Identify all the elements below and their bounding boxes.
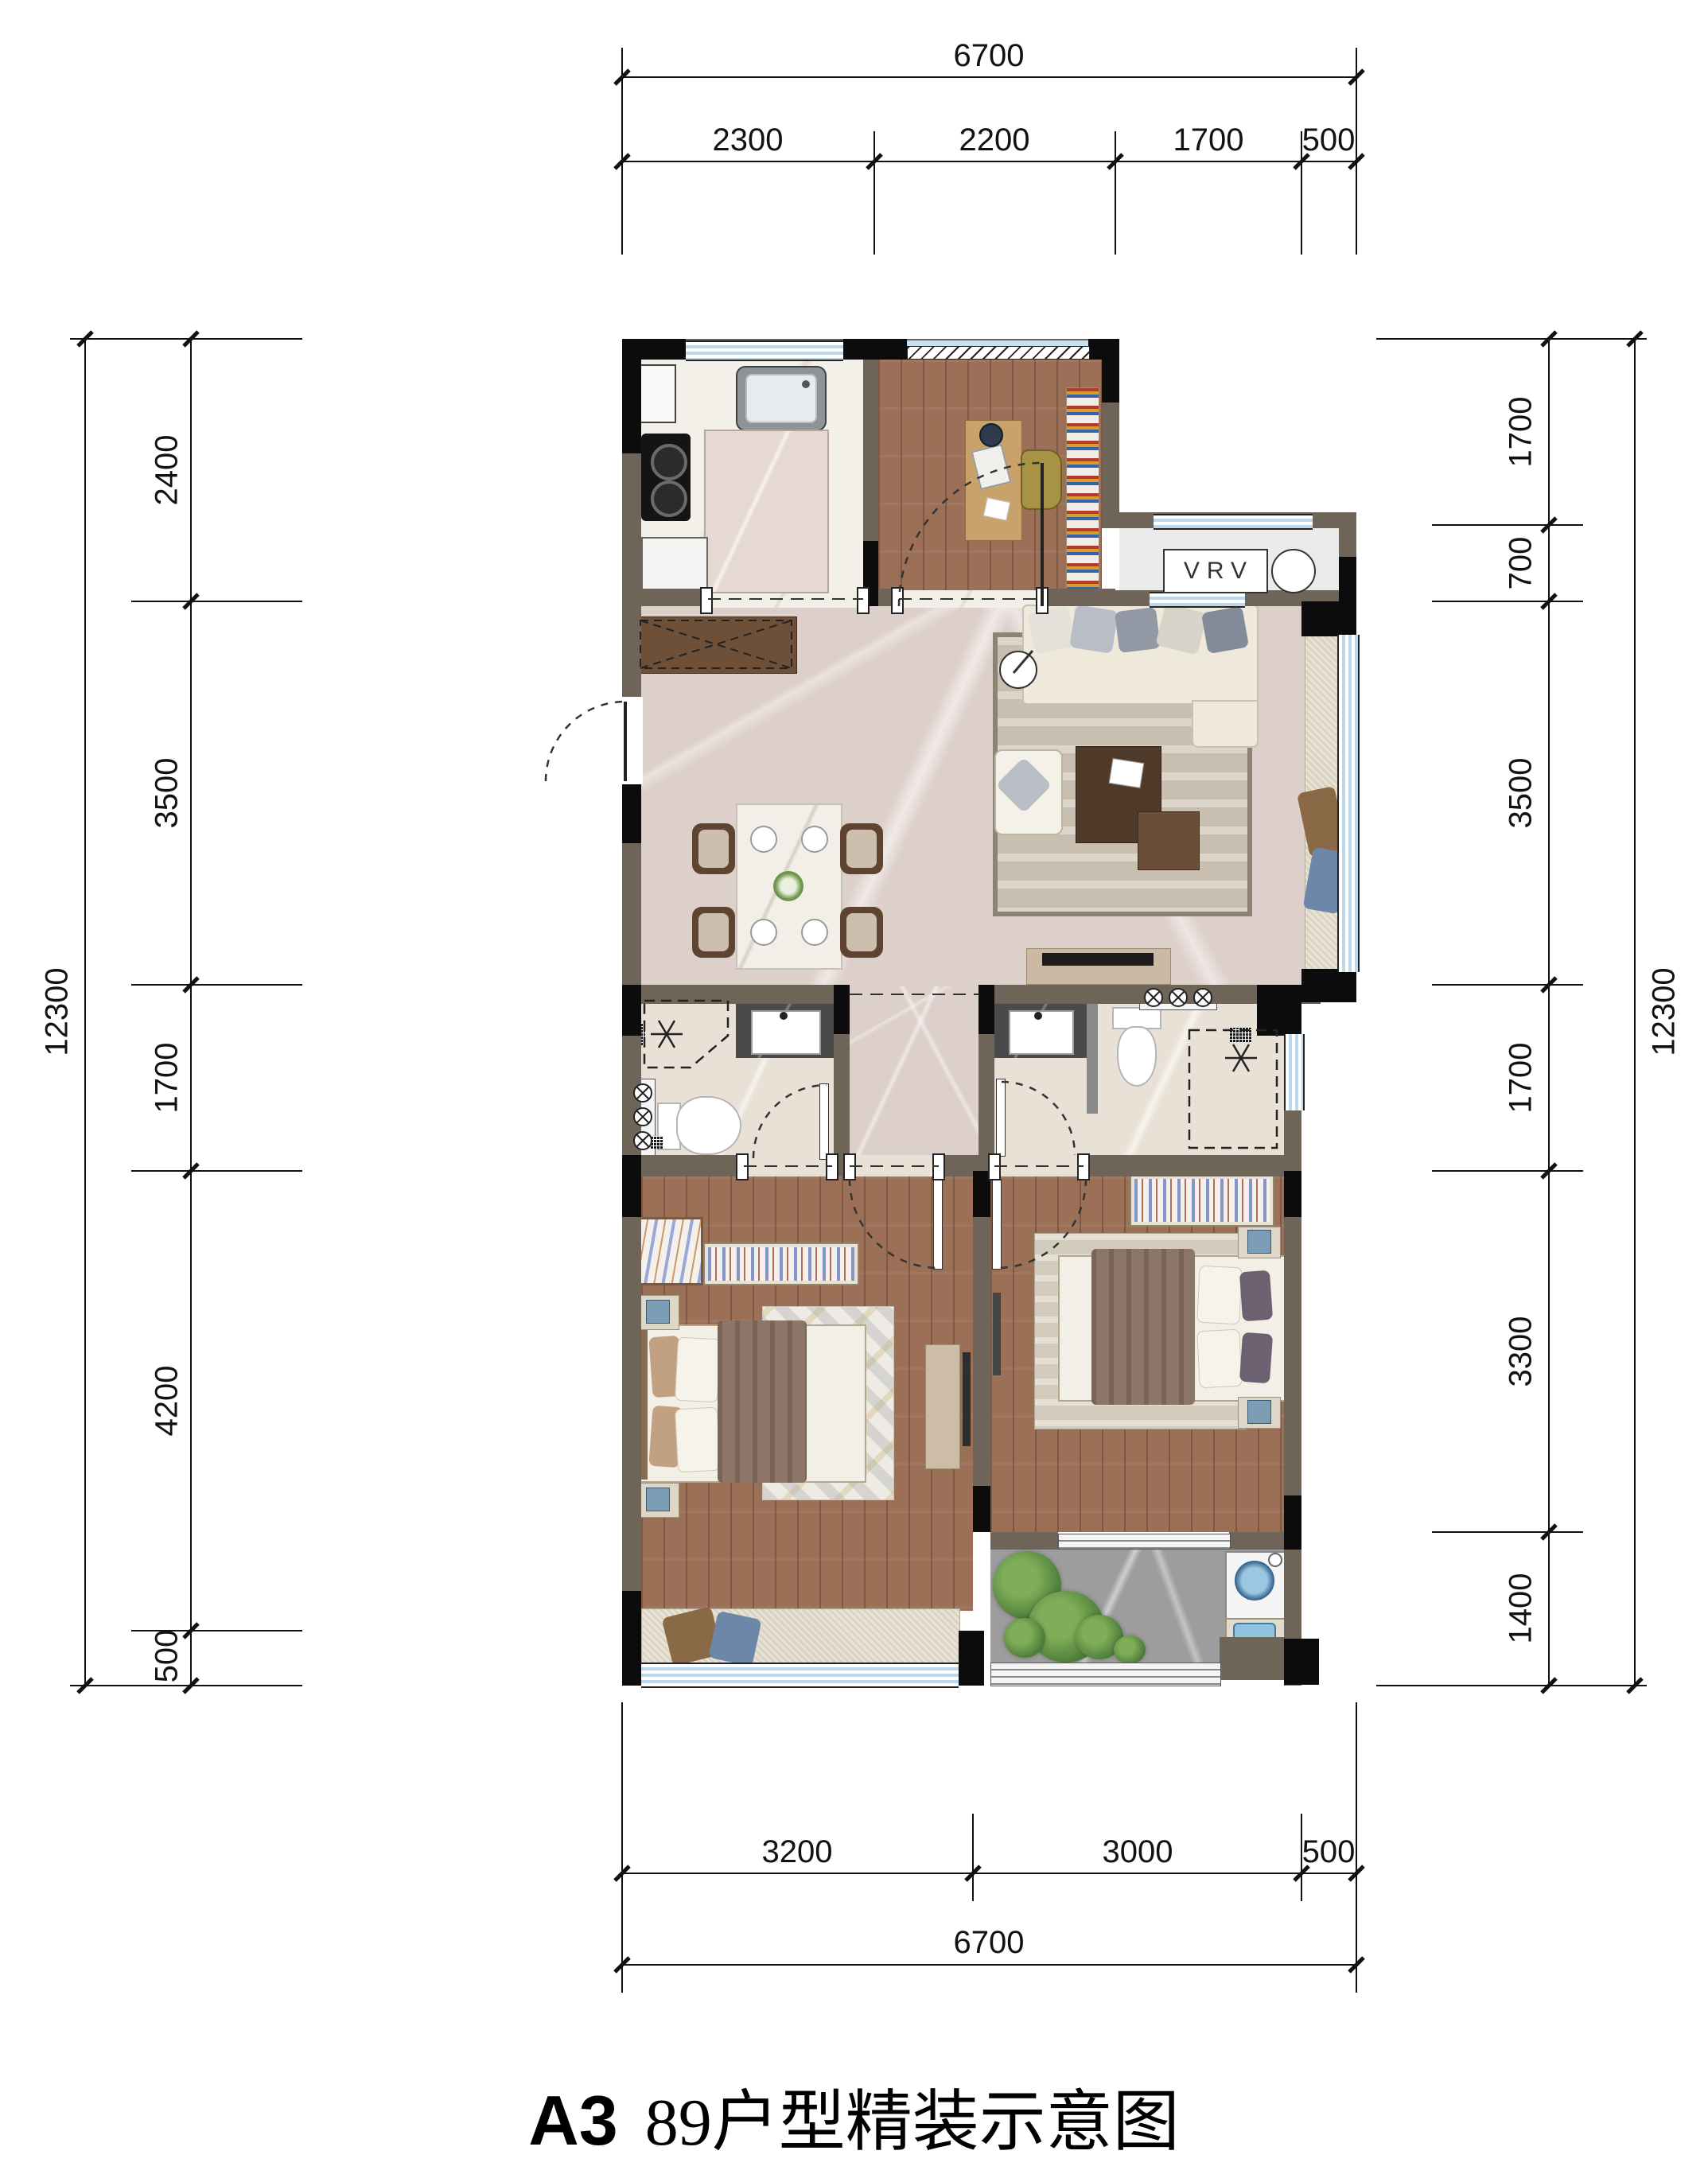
- living-bay-window: [1337, 635, 1360, 972]
- dim-label: 2400: [150, 435, 185, 506]
- bedroom1-wardrobe: [703, 1243, 859, 1285]
- door-jamb: [1077, 1153, 1090, 1180]
- door-jamb: [843, 1153, 856, 1180]
- sofa-pillow: [1027, 605, 1076, 655]
- dim-label: 2200: [959, 123, 1030, 158]
- bath2-toilet-bowl: [1117, 1026, 1157, 1087]
- dim-label: 2300: [713, 123, 784, 158]
- cooktop-burner-icon: [651, 480, 687, 517]
- bedroom2-wardrobe: [1130, 1174, 1274, 1227]
- dim-label: 1400: [1504, 1573, 1539, 1644]
- balcony-railing-window: [990, 1663, 1221, 1686]
- dim-label: 3500: [150, 758, 185, 829]
- sofa-chaise: [1192, 700, 1259, 748]
- vrv-text: VRV: [1184, 558, 1254, 585]
- dining-chair-cushion: [846, 913, 877, 951]
- desk-chair: [1021, 449, 1062, 510]
- dim-label: 6700: [954, 1925, 1025, 1961]
- table-flowers-icon: [773, 871, 803, 901]
- floor-lamp-icon: [999, 651, 1037, 689]
- door-jamb: [736, 1153, 749, 1180]
- nightstand-accessory-icon: [646, 1300, 670, 1324]
- bed2-pillow-purple: [1239, 1270, 1273, 1321]
- wall-column: [1301, 969, 1356, 1002]
- wall: [1284, 1171, 1301, 1550]
- bedroom2-tv-screen: [993, 1293, 1001, 1375]
- bath2-window: [1284, 1034, 1305, 1110]
- study-door-threshold: [899, 590, 1042, 608]
- master-bath-door-leaf: [819, 1083, 829, 1160]
- door-jamb: [826, 1153, 838, 1180]
- wall: [1220, 1637, 1284, 1680]
- study-window-glass: [907, 340, 1088, 346]
- bedroom1-dresser: [925, 1344, 960, 1469]
- sofa-pillow: [1115, 607, 1161, 653]
- sofa-pillow: [1069, 605, 1119, 654]
- dim-label: 3200: [762, 1834, 833, 1870]
- bedroom2-balcony-window: [1058, 1534, 1231, 1550]
- vrv-fan-icon: [1271, 549, 1316, 593]
- wall: [641, 1155, 744, 1176]
- dim-label: 1700: [150, 1043, 185, 1114]
- dim-label: 12300: [40, 967, 76, 1056]
- bedroom-door-thresholds: [744, 1155, 1084, 1176]
- kitchen-counter-cabinet: [641, 537, 708, 593]
- vrv-unit-label: VRV: [1163, 549, 1268, 593]
- dim-label: 700: [1504, 537, 1539, 590]
- dim-label: 3000: [1103, 1834, 1173, 1870]
- entry-door-arc: [546, 702, 625, 781]
- wall-column: [1301, 601, 1356, 636]
- door-jamb: [988, 1153, 1001, 1180]
- dim-label: 1700: [1173, 123, 1244, 158]
- door-jamb: [1036, 587, 1049, 614]
- bedroom1-bay-window: [641, 1663, 959, 1688]
- nightstand-accessory-icon: [1247, 1230, 1271, 1254]
- dining-chair-cushion: [846, 830, 877, 868]
- dim-label: 12300: [1647, 967, 1683, 1056]
- place-setting-icon: [750, 826, 777, 853]
- master-floor-drain-icon: [651, 1136, 663, 1149]
- master-toilet-bowl: [676, 1096, 741, 1155]
- bedroom2-door-leaf: [992, 1179, 1002, 1270]
- wall-column: [959, 1631, 984, 1686]
- bedroom1-art-frame: [635, 1217, 703, 1285]
- wall: [973, 1171, 990, 1532]
- bath2-sink-faucet-icon: [1034, 1012, 1042, 1020]
- dim-label: 500: [150, 1630, 185, 1683]
- bedroom1-tv-screen: [963, 1352, 971, 1446]
- wall-column: [1284, 1495, 1301, 1550]
- kitchen-window: [686, 340, 843, 361]
- wall-column: [622, 985, 641, 1036]
- wall-column: [622, 780, 641, 843]
- nightstand-accessory-icon: [646, 1488, 670, 1511]
- cooktop-burner-icon: [651, 444, 687, 480]
- dim-label: 1700: [1504, 397, 1539, 468]
- dim-label: 500: [1302, 1834, 1356, 1870]
- wall-column: [622, 1155, 641, 1217]
- hallway-floor: [850, 986, 979, 1155]
- wall-column: [622, 339, 641, 453]
- place-setting-icon: [750, 919, 777, 946]
- wall-column: [1339, 557, 1356, 606]
- wall-column: [622, 1591, 641, 1686]
- wall-column: [1102, 339, 1119, 403]
- bed2-pillow-white: [1196, 1329, 1243, 1389]
- kitchen-faucet-icon: [802, 380, 810, 388]
- wall: [1084, 1155, 1301, 1176]
- bedroom1-door-leaf: [933, 1179, 943, 1270]
- bed1-blanket: [718, 1320, 807, 1483]
- place-setting-icon: [801, 826, 828, 853]
- wardrobe-clothes-icon: [1134, 1179, 1270, 1222]
- wall: [1042, 589, 1115, 606]
- vrv-window: [1154, 514, 1313, 530]
- wardrobe-clothes-icon: [708, 1247, 854, 1281]
- door-jamb: [932, 1153, 945, 1180]
- bookshelf: [1066, 387, 1099, 590]
- coffee-table-lower: [1138, 811, 1200, 870]
- door-jamb: [700, 587, 713, 614]
- tv-screen: [1042, 953, 1154, 966]
- sofa-pillow: [1201, 606, 1249, 654]
- wall: [1229, 1532, 1284, 1550]
- dim-label: 6700: [954, 38, 1025, 74]
- wall-column: [834, 985, 850, 1034]
- bed2-pillow-white: [1196, 1266, 1243, 1325]
- wall-column: [1284, 1639, 1319, 1685]
- nightstand-accessory-icon: [1247, 1400, 1271, 1424]
- plan-title: A389户型精装示意图: [528, 2068, 1180, 2164]
- door-jamb: [857, 587, 870, 614]
- washer-dial-icon: [1268, 1553, 1282, 1567]
- unit-code: A3: [528, 2081, 618, 2160]
- kitchen-island: [704, 430, 829, 593]
- bed1-pillow-white: [675, 1407, 721, 1473]
- wall: [990, 1532, 1058, 1550]
- dim-label: 1700: [1504, 1043, 1539, 1114]
- master-sink-faucet-icon: [780, 1012, 788, 1020]
- bed1-pillow-white: [675, 1337, 721, 1403]
- dining-chair-cushion: [698, 830, 729, 868]
- entry-door-opening: [619, 697, 643, 784]
- wall: [641, 985, 850, 1004]
- unit-name: 89户型精装示意图: [645, 2086, 1180, 2160]
- dim-label: 4200: [150, 1366, 185, 1437]
- dim-label: 3500: [1504, 758, 1539, 829]
- wall-column: [1257, 985, 1301, 1036]
- plant-icon: [1114, 1635, 1146, 1664]
- wall-column: [979, 985, 994, 1034]
- living-high-window: [1150, 592, 1245, 608]
- place-setting-icon: [801, 919, 828, 946]
- study-window-screen: [907, 346, 1090, 360]
- bed2-pillow-purple: [1239, 1332, 1273, 1383]
- dim-label: 3300: [1504, 1316, 1539, 1387]
- wall-column: [973, 1486, 990, 1532]
- washer-drum-icon: [1235, 1561, 1274, 1600]
- dim-label: 500: [1302, 123, 1356, 158]
- floor-plan-page: VRV 6700 2300 2200 1700 500 3200 3000 50…: [0, 0, 1708, 2174]
- wall-column: [1284, 1171, 1301, 1217]
- dining-chair-cushion: [698, 913, 729, 951]
- plant-icon: [1004, 1618, 1045, 1658]
- bed2-blanket: [1091, 1249, 1195, 1405]
- shoe-cabinet: [636, 616, 797, 674]
- bath2-partition: [1087, 1004, 1098, 1114]
- wall-column: [843, 339, 907, 360]
- door-jamb: [891, 587, 904, 614]
- bath2-door-leaf: [996, 1079, 1006, 1157]
- wall: [622, 589, 708, 606]
- desk-clock-icon: [979, 423, 1003, 447]
- bath2-shower-grille-icon: [1230, 1028, 1252, 1042]
- magazine-icon: [1109, 758, 1145, 788]
